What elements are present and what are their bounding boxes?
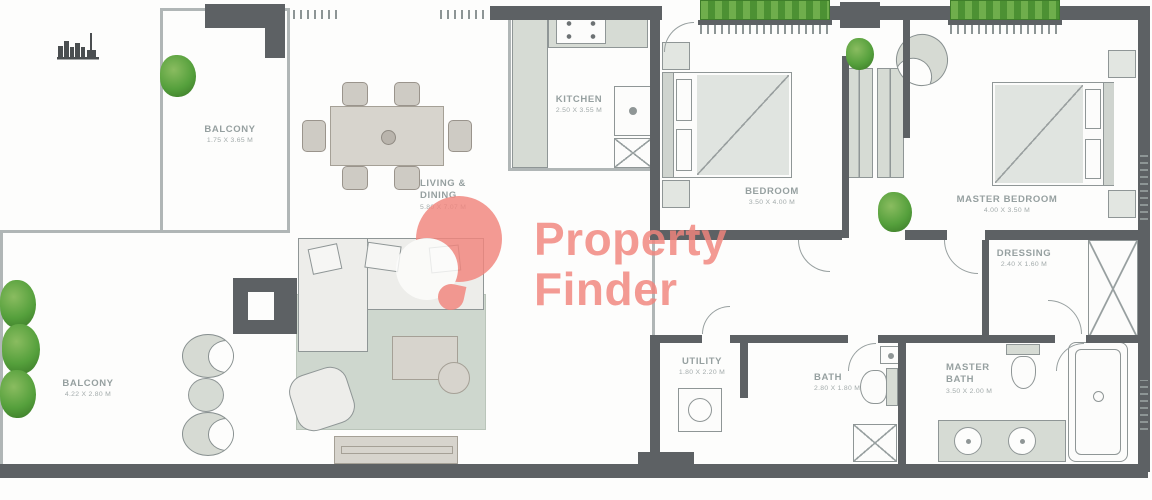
wall-segment xyxy=(0,464,662,478)
balcony-edge-line xyxy=(0,230,290,233)
room-label-bath: BATH 2.80 X 1.80 M xyxy=(814,372,860,394)
dining-chair xyxy=(394,82,420,106)
room-label-master-bath: MASTER BATH 3.50 X 2.00 M xyxy=(946,362,992,397)
shower-tray xyxy=(853,424,897,462)
wall-niche xyxy=(248,292,274,320)
bed xyxy=(992,82,1114,186)
room-label-dressing: DRESSING 2.40 X 1.60 M xyxy=(997,248,1051,270)
toilet-tank xyxy=(1006,344,1040,355)
kitchen-edge-line xyxy=(508,168,656,171)
wall-segment xyxy=(985,230,1145,240)
washing-machine xyxy=(678,388,722,432)
floor-plan: BALCONY 1.75 X 3.65 M LIVING & DINING 5.… xyxy=(0,0,1152,500)
kitchen-counter xyxy=(512,12,548,168)
room-label-living-dining: LIVING & DINING 5.80 X 7.07 M xyxy=(420,178,466,213)
room-name: DRESSING xyxy=(997,248,1051,260)
wall-segment xyxy=(905,335,1055,343)
watermark-text-line2: Finder xyxy=(534,266,678,312)
balcony-chair xyxy=(182,412,234,456)
kitchen-edge-line xyxy=(508,8,511,170)
room-dims: 3.50 X 2.00 M xyxy=(946,388,992,397)
wall-segment xyxy=(905,230,947,240)
sofa-pillow xyxy=(364,242,401,272)
blanket xyxy=(995,85,1083,183)
room-label-bedroom: BEDROOM 3.50 X 4.00 M xyxy=(745,186,799,208)
window-hatch xyxy=(950,25,1060,34)
wall-segment xyxy=(730,335,848,343)
planter-hedge xyxy=(700,0,830,20)
toilet xyxy=(1011,356,1036,389)
room-name: BALCONY xyxy=(204,124,255,136)
dining-chair xyxy=(448,120,472,152)
wall-segment xyxy=(650,230,842,240)
wall-segment xyxy=(740,343,748,398)
dining-chair xyxy=(342,82,368,106)
plant xyxy=(878,192,912,232)
room-label-balcony-top: BALCONY 1.75 X 3.65 M xyxy=(204,124,255,146)
closet xyxy=(1088,240,1138,338)
stove xyxy=(556,16,606,44)
toilet xyxy=(860,370,887,404)
planter-hedge xyxy=(950,0,1060,20)
room-label-master-bedroom: MASTER BEDROOM 4.00 X 3.50 M xyxy=(957,194,1058,216)
toilet-tank xyxy=(886,368,898,406)
door-arc xyxy=(664,22,694,52)
balcony-edge-line xyxy=(287,8,290,232)
sofa-pillow xyxy=(429,245,462,274)
wall-segment xyxy=(982,240,989,338)
room-name: MASTER BEDROOM xyxy=(957,194,1058,206)
plant xyxy=(846,38,874,70)
room-dims: 4.22 X 2.80 M xyxy=(62,391,113,400)
bathroom-sink xyxy=(880,346,900,364)
room-name: UTILITY xyxy=(679,356,725,368)
plant xyxy=(2,324,40,374)
nightstand xyxy=(1108,190,1136,218)
room-label-balcony-bottom: BALCONY 4.22 X 2.80 M xyxy=(62,378,113,400)
wall-segment xyxy=(662,464,1148,478)
city-skyline-icon xyxy=(56,32,108,62)
side-table xyxy=(438,362,470,394)
room-name: BALCONY xyxy=(62,378,113,390)
pillow xyxy=(1085,89,1101,129)
faucet xyxy=(888,353,894,359)
headboard xyxy=(1103,83,1114,185)
wall-segment xyxy=(878,335,905,343)
tv-console xyxy=(334,436,458,464)
door-arc xyxy=(1048,300,1082,334)
blanket xyxy=(697,75,789,175)
wardrobe xyxy=(877,68,904,178)
door-arc xyxy=(798,240,830,272)
door-arc xyxy=(702,306,730,334)
wardrobe xyxy=(846,68,873,178)
room-dims: 1.80 X 2.20 M xyxy=(679,369,725,378)
kitchen-sink xyxy=(614,86,652,136)
plant xyxy=(0,280,36,328)
room-dims: 4.00 X 3.50 M xyxy=(957,207,1058,216)
balcony-edge-line xyxy=(160,8,163,232)
table-centerpiece xyxy=(381,130,396,145)
door-arc xyxy=(1056,343,1084,371)
plant xyxy=(160,55,196,97)
room-name: MASTER BATH xyxy=(946,362,992,387)
room-dims: 2.40 X 1.60 M xyxy=(997,261,1051,270)
nightstand xyxy=(1108,50,1136,78)
balcony-table xyxy=(188,378,224,412)
window-hatch xyxy=(1140,150,1148,220)
wall-segment xyxy=(840,2,880,28)
wall-segment xyxy=(1058,6,1146,20)
window-hatch xyxy=(700,25,830,34)
chair-seat xyxy=(208,340,234,372)
shower-drain xyxy=(1093,391,1104,402)
pillow xyxy=(676,129,692,171)
nightstand xyxy=(662,180,690,208)
wall-segment xyxy=(650,343,660,465)
room-name: BEDROOM xyxy=(745,186,799,198)
faucet xyxy=(629,107,637,115)
tv-unit-detail xyxy=(341,446,453,454)
wall-segment xyxy=(898,343,906,465)
drain xyxy=(1020,439,1025,444)
dining-chair xyxy=(342,166,368,190)
hall-edge-line xyxy=(652,238,655,338)
dining-table xyxy=(330,106,444,166)
washer-drum xyxy=(688,398,712,422)
wall-segment xyxy=(650,6,660,238)
drain xyxy=(966,439,971,444)
room-dims: 2.50 X 3.55 M xyxy=(556,107,602,116)
window-hatch xyxy=(440,10,484,19)
room-dims: 1.75 X 3.65 M xyxy=(204,137,255,146)
door-arc xyxy=(944,240,978,274)
wall-segment xyxy=(490,6,662,20)
room-dims: 5.80 X 7.07 M xyxy=(420,204,466,213)
wall-column xyxy=(233,278,297,334)
window-hatch xyxy=(1140,380,1148,430)
dining-chair xyxy=(394,166,420,190)
pillow xyxy=(676,79,692,121)
plant xyxy=(0,370,36,418)
chair-seat xyxy=(208,418,234,450)
door-arc xyxy=(848,343,876,371)
room-label-kitchen: KITCHEN 2.50 X 3.55 M xyxy=(556,94,602,116)
balcony-chair xyxy=(182,334,234,378)
wall-segment xyxy=(650,335,702,343)
bed xyxy=(662,72,792,178)
headboard xyxy=(663,73,674,177)
pillow xyxy=(1085,139,1101,179)
room-name: KITCHEN xyxy=(556,94,602,106)
wall-segment xyxy=(903,6,910,138)
window-hatch xyxy=(293,10,337,19)
room-dims: 3.50 X 4.00 M xyxy=(745,199,799,208)
dining-chair xyxy=(302,120,326,152)
room-label-utility: UTILITY 1.80 X 2.20 M xyxy=(679,356,725,378)
room-name: LIVING & DINING xyxy=(420,178,466,203)
kitchen-appliance xyxy=(614,138,652,168)
wall-segment xyxy=(842,56,849,238)
wall-segment xyxy=(265,4,285,58)
room-dims: 2.80 X 1.80 M xyxy=(814,385,860,394)
wall-segment xyxy=(1086,335,1140,343)
room-name: BATH xyxy=(814,372,860,384)
